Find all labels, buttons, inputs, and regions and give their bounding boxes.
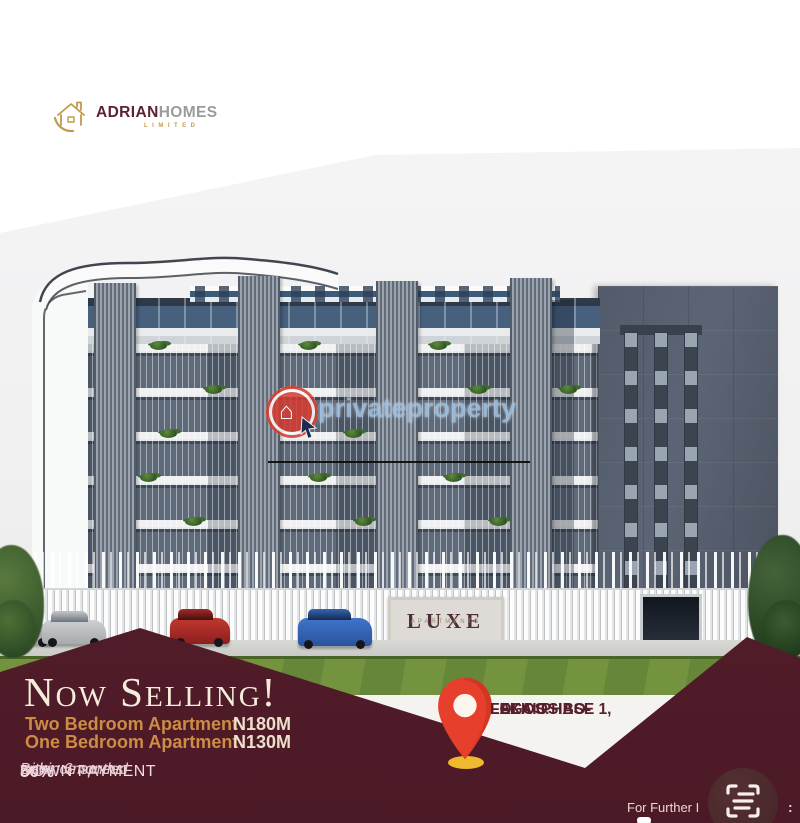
house-logo-icon: [52, 98, 90, 136]
scan-qr-icon: [725, 783, 761, 819]
balcony-plant: [185, 517, 202, 526]
building-entrance: [640, 594, 702, 646]
cutoff-social-icon: [637, 817, 651, 823]
property-flyer: ADRIANHOMES LIMITED LUXE APARTMENTS: [0, 0, 800, 823]
horizontal-line-artifact: [268, 461, 530, 463]
balcony-plant: [430, 341, 447, 350]
balcony-plant: [140, 473, 157, 482]
offer-price: N130M: [233, 732, 291, 753]
fence-pickets: [34, 552, 776, 592]
balcony-plant: [445, 473, 462, 482]
building-sign: LUXE APARTMENTS: [388, 597, 504, 645]
now-selling-headline: Now Selling!: [24, 668, 277, 716]
brand-subtitle: LIMITED: [144, 123, 200, 129]
balcony-plant: [160, 429, 177, 438]
cursor-arrow-icon: [300, 416, 320, 440]
brand-name-bold: ADRIAN: [96, 104, 159, 121]
balcony-plant: [355, 517, 372, 526]
inquiries-text: For Further I: [627, 800, 699, 815]
private-property-watermark: ⌂ privateproperty: [266, 384, 546, 446]
offer-label: One Bedroom Apartment: [25, 732, 238, 753]
balcony-plant: [310, 473, 327, 482]
car-blue: [298, 618, 372, 646]
balcony-plant: [560, 385, 577, 394]
balcony-plant: [300, 341, 317, 350]
balcony-plant: [490, 517, 507, 526]
brand-name-light: HOMES: [159, 104, 218, 121]
payment-note: within 6months: [20, 762, 123, 777]
louver-column: [94, 283, 136, 593]
inquiries-colon: :: [788, 799, 793, 815]
adrian-homes-logo: ADRIANHOMES LIMITED: [52, 96, 272, 144]
car-red: [170, 618, 230, 644]
building-sign-subtitle: APARTMENTS: [411, 619, 481, 625]
facade-shadow: [552, 300, 574, 592]
balcony-plant: [205, 385, 222, 394]
watermark-text: privateproperty: [318, 393, 516, 424]
location-pin-icon: [436, 676, 494, 762]
location-line: LAGOS.: [490, 701, 549, 718]
car-silver: [42, 620, 106, 644]
balcony-plant: [150, 341, 167, 350]
watermark-house-icon: ⌂: [279, 400, 294, 424]
